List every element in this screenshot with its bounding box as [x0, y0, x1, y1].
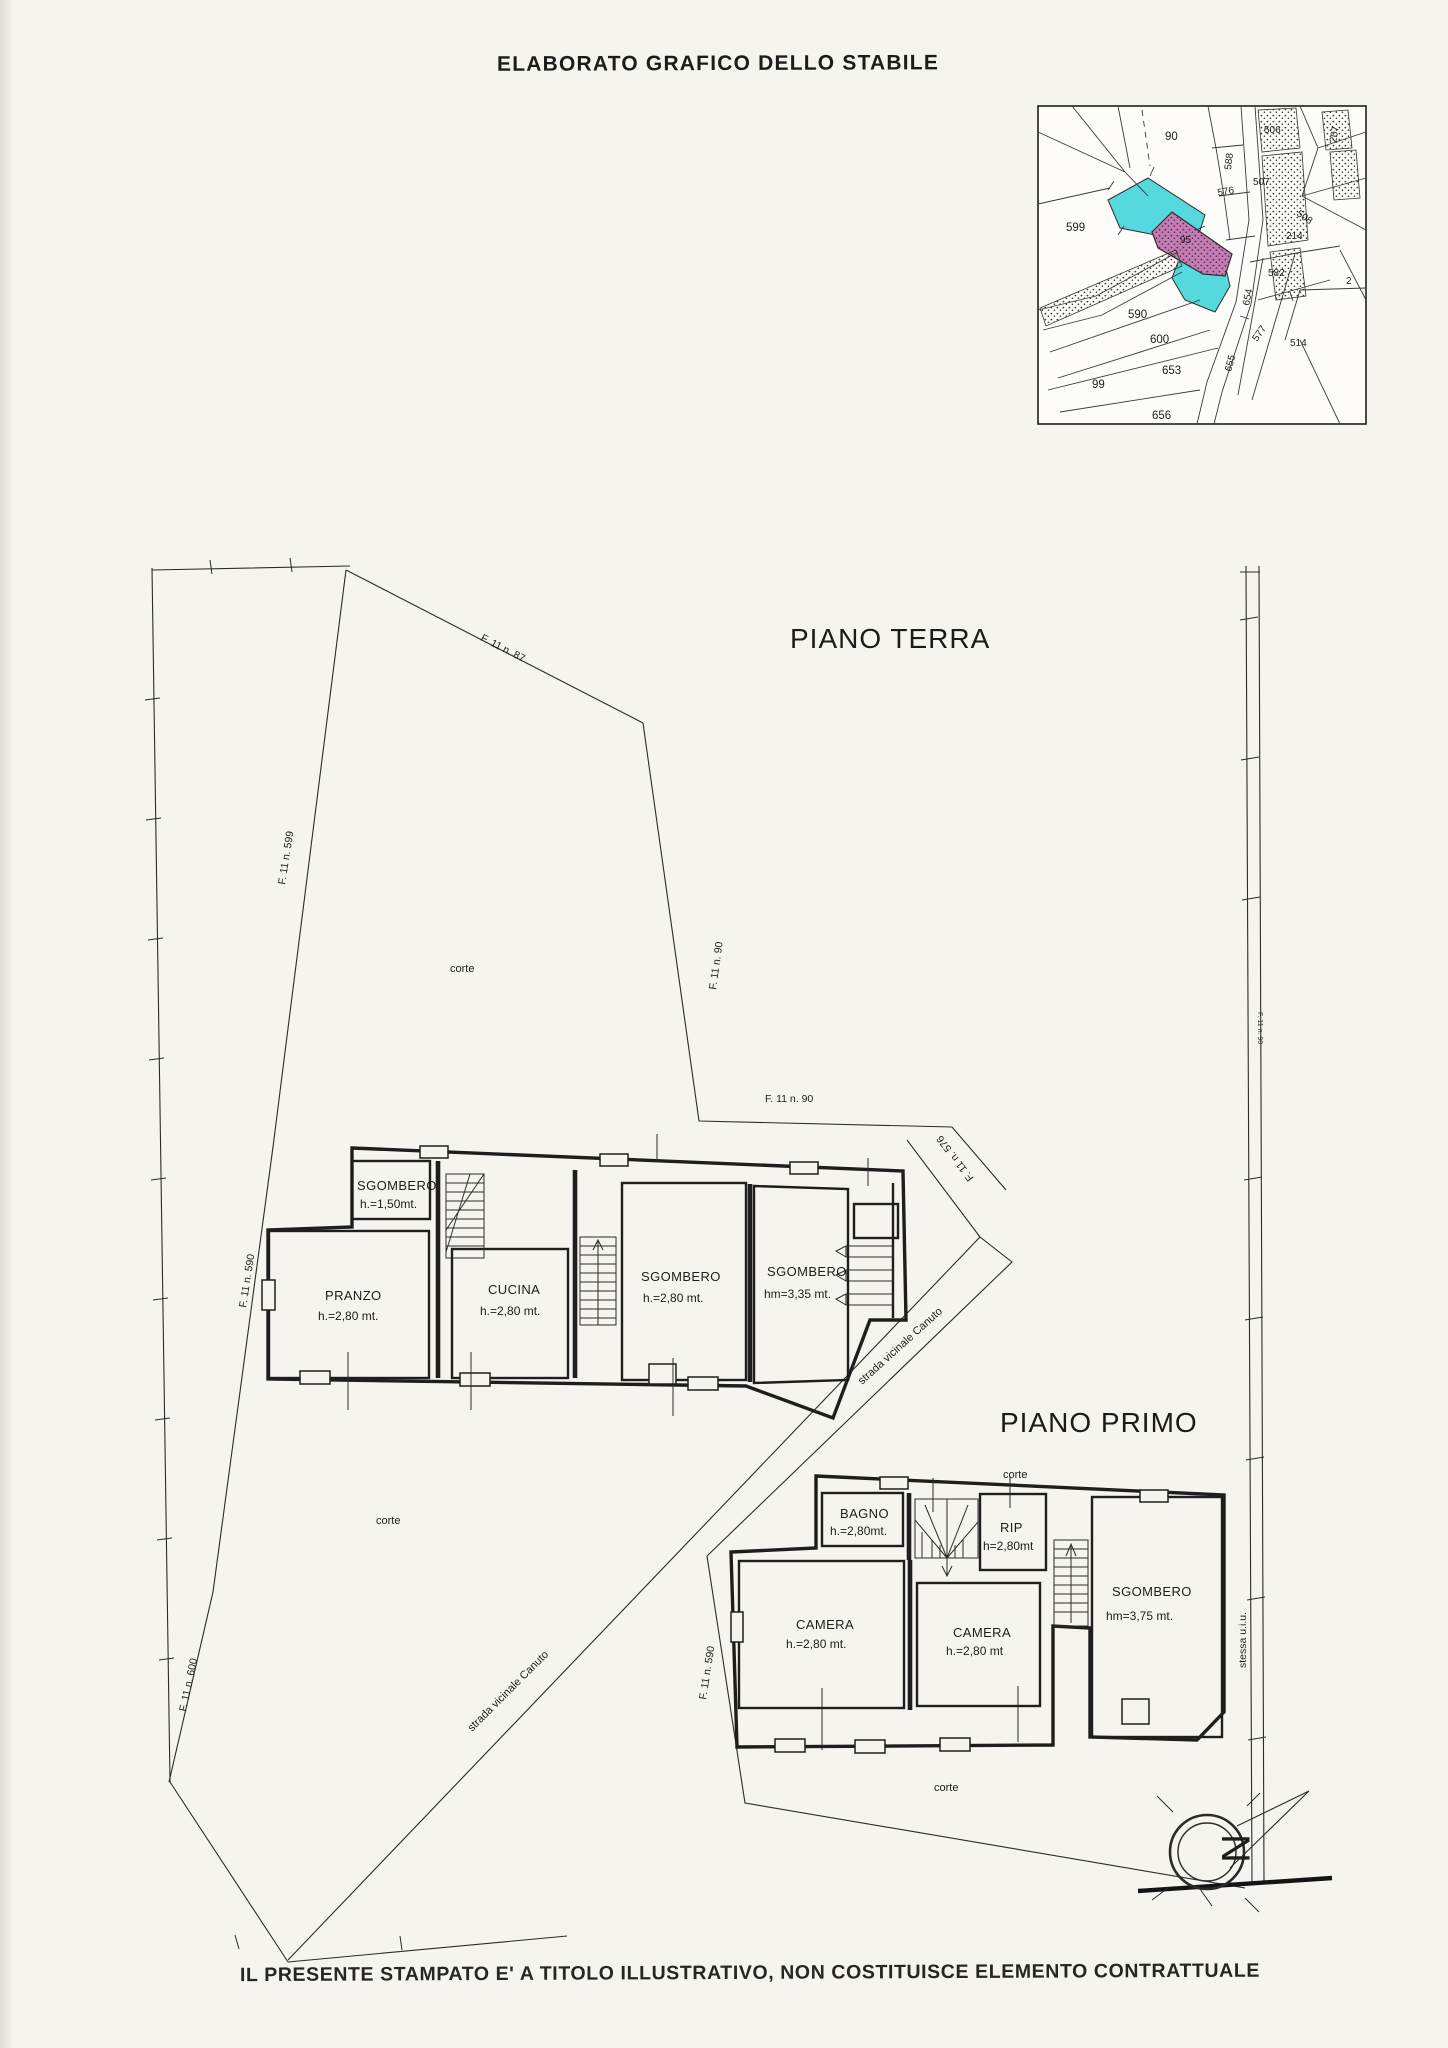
boundary-90-line	[643, 723, 1006, 1190]
ground-stair-2	[580, 1237, 616, 1325]
label-f11n90-horizontal: F. 11 n. 90	[765, 1093, 813, 1105]
room-camera-1	[739, 1561, 904, 1708]
cadastral-minimap: 90 588 576 506 507 508 207 214 599 95 58…	[1038, 106, 1366, 424]
parcel-514: 514	[1290, 338, 1307, 349]
sgombero2-name: SGOMBERO	[641, 1269, 721, 1284]
survey-frame-bottom	[288, 1936, 567, 1962]
rip-height: h=2,80mt	[983, 1539, 1034, 1553]
label-corte-ff-bottom: corte	[934, 1782, 958, 1794]
cucina-height: h.=2,80 mt.	[480, 1304, 540, 1318]
label-f11n590-first-floor: F. 11 n. 590	[697, 1645, 717, 1700]
parcel-506: 506	[1264, 125, 1281, 136]
camera2-name: CAMERA	[953, 1625, 1011, 1640]
disclaimer-text: IL PRESENTE STAMPATO E' A TITOLO ILLUSTR…	[240, 1960, 1200, 1987]
sgombero3-height: hm=3,35 mt.	[764, 1287, 831, 1301]
label-stessa-uiu: stessa u.i.u.	[1237, 1612, 1249, 1668]
north-cone	[1230, 1791, 1309, 1868]
pranzo-height: h.=2,80 mt.	[318, 1309, 378, 1323]
ground-floor-title: PIANO TERRA	[790, 623, 990, 654]
first-stair-4	[1054, 1540, 1088, 1626]
boundary-labels: F. 11 n. 87 F. 11 n. 599 F. 11 n. 90 F. …	[177, 632, 1263, 1794]
label-corte-lower: corte	[376, 1515, 400, 1527]
label-corte-upper: corte	[450, 963, 474, 975]
label-f11n599: F. 11 n. 599	[276, 830, 296, 885]
label-f11n590-west: F. 11 n. 590	[237, 1253, 257, 1308]
right-road-ticks	[1240, 572, 1266, 1740]
camera1-height: h.=2,80 mt.	[786, 1637, 846, 1651]
ground-stair-1	[446, 1174, 484, 1258]
north-arrow: N	[1152, 1791, 1309, 1912]
ground-comb-structure	[836, 1183, 898, 1318]
label-corte-ff-top: corte	[1003, 1469, 1027, 1481]
ground-floor-building: SGOMBERO h.=1,50mt. PRANZO h.=2,80 mt. C…	[262, 1134, 906, 1418]
parcel-588: 588	[1223, 152, 1236, 170]
sgombero1-height: h.=1,50mt.	[360, 1197, 417, 1211]
first-floor-small-square	[1122, 1699, 1149, 1724]
ground-door-opening	[649, 1364, 676, 1384]
west-boundary-line	[169, 570, 346, 1782]
room-pranzo	[269, 1231, 429, 1378]
rip-name: RIP	[1000, 1520, 1023, 1535]
bagno-height: h.=2,80mt.	[830, 1524, 887, 1538]
first-stair-winder	[915, 1499, 978, 1576]
label-strada-lower: strada vicinale Canuto	[466, 1649, 551, 1734]
plan-drawing: 90 588 576 506 507 508 207 214 599 95 58…	[0, 0, 1448, 2048]
first-party-walls	[909, 1493, 910, 1710]
ground-room-labels: SGOMBERO h.=1,50mt. PRANZO h.=2,80 mt. C…	[318, 1178, 847, 1323]
sgombero4-height: hm=3,75 mt.	[1106, 1609, 1173, 1623]
sgombero2-height: h.=2,80 mt.	[643, 1291, 703, 1305]
parcel-99: 99	[1092, 379, 1105, 391]
label-f11n87: F. 11 n. 87	[479, 632, 528, 665]
parcel-656: 656	[1152, 410, 1171, 422]
site-boundaries	[145, 558, 1332, 1962]
parcel-507: 507	[1253, 177, 1270, 188]
parcel-90: 90	[1165, 131, 1178, 143]
parcel-214: 214	[1286, 231, 1303, 242]
camera2-height: h.=2,80 mt	[946, 1644, 1004, 1658]
bagno-name: BAGNO	[840, 1506, 889, 1521]
cucina-name: CUCINA	[488, 1282, 540, 1297]
label-f11n90-road: F. 11 n. 90	[1256, 1012, 1263, 1044]
camera1-name: CAMERA	[796, 1617, 854, 1632]
first-floor-title: PIANO PRIMO	[1000, 1407, 1198, 1438]
parcel-653: 653	[1162, 365, 1181, 377]
label-f11n576: F. 11 n. 576	[934, 1133, 976, 1184]
parcel-599: 599	[1066, 222, 1085, 234]
parcel-95: 95	[1180, 235, 1192, 246]
pranzo-name: PRANZO	[325, 1288, 382, 1303]
survey-ticks-left	[145, 558, 402, 1950]
parcel-600: 600	[1150, 334, 1169, 346]
sgombero4-name: SGOMBERO	[1112, 1584, 1192, 1599]
road-nw-edge	[288, 1237, 980, 1960]
right-road-lines	[1246, 566, 1264, 1884]
sgombero3-name: SGOMBERO	[767, 1264, 847, 1279]
first-floor-site-boundary	[707, 1556, 1245, 1888]
label-f11n600: F. 11 n. 600	[177, 1657, 200, 1713]
first-floor-building: BAGNO h.=2,80mt. RIP h=2,80mt CAMERA h.=…	[731, 1476, 1224, 1753]
first-windows	[731, 1477, 1168, 1753]
label-strada-upper: strada vicinale Canuto	[856, 1305, 945, 1387]
sgombero1-name: SGOMBERO	[357, 1178, 437, 1193]
parcel-590: 590	[1128, 309, 1147, 321]
parcel-582: 582	[1268, 268, 1285, 279]
parcel-2: 2	[1346, 276, 1352, 287]
room-sgombero-3	[754, 1186, 848, 1383]
label-f11n90-vertical: F. 11 n. 90	[707, 941, 726, 991]
